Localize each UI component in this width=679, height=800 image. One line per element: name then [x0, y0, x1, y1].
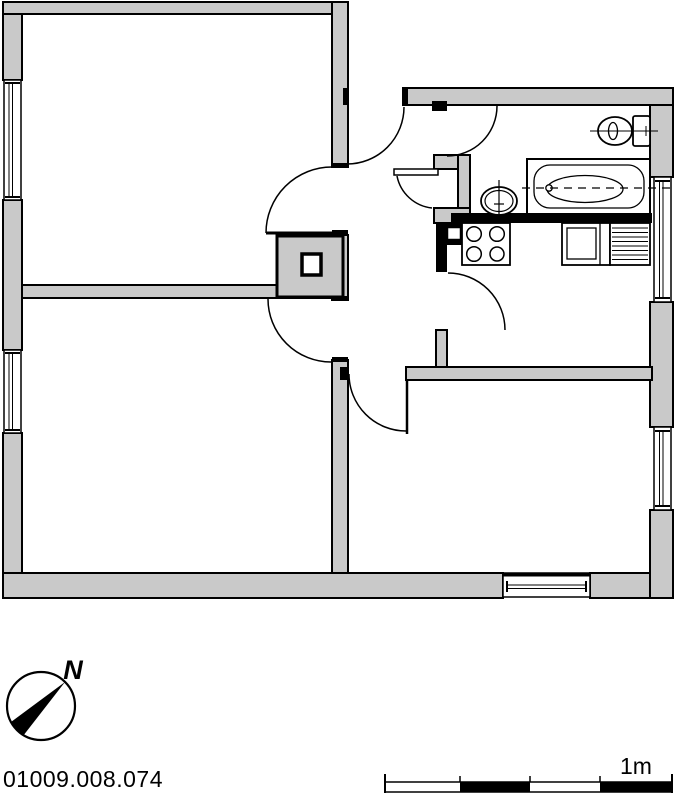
- room3-door-arc: [349, 374, 406, 431]
- west-wall-pier-top: [3, 14, 22, 80]
- room1-east-wall: [332, 2, 348, 167]
- north-wall: [3, 2, 348, 14]
- room3-north-wall: [406, 367, 652, 380]
- east-wall-pier-bottom: [650, 510, 673, 598]
- wall-end-cap-room1-door-bottom: [332, 230, 348, 235]
- compass-north-label: N: [63, 655, 83, 685]
- scale-bar-label: 1m: [620, 753, 652, 779]
- floor-plan-svg: N1m: [0, 0, 679, 800]
- room2-door-arc: [268, 299, 331, 362]
- east-wall-pier-mid: [650, 302, 673, 427]
- drawing-number: 01009.008.074: [3, 766, 163, 793]
- scale-bar-black-seg-2: [600, 782, 672, 792]
- west-wall-pier-mid: [3, 200, 22, 350]
- wall-end-cap-room2-door-bottom: [332, 357, 348, 362]
- kitchen-wall-stub: [436, 330, 447, 369]
- wall-end-cap-entrance-west: [343, 88, 348, 105]
- duct-opening: [447, 227, 461, 240]
- wall-end-cap-entrance-east: [403, 88, 408, 105]
- hall-west-wall-lower: [332, 360, 348, 573]
- bathtub-outer: [527, 159, 650, 214]
- closet-door-arc: [397, 176, 432, 208]
- scale-bar-inner-ticks: [460, 776, 600, 782]
- wall-end-cap-room2-door-top: [332, 296, 348, 301]
- wall-end-cap-room1-door-top: [332, 163, 348, 168]
- kitchen-door-arc: [448, 273, 505, 330]
- room1-door-arc: [266, 167, 332, 233]
- entrance-door-arc: [347, 107, 404, 164]
- closet-door-leaf: [394, 169, 438, 175]
- floor-plan-page: N1m 01009.008.074: [0, 0, 679, 800]
- drainer-body: [610, 223, 650, 265]
- chimney-flue-opening: [302, 254, 321, 275]
- scale-bar-black-seg-1: [460, 782, 530, 792]
- wall-end-cap-room3-door: [340, 367, 348, 380]
- bathroom-door-arc: [447, 106, 497, 156]
- bath-door-hinge-notch: [432, 101, 447, 111]
- south-wall-west: [3, 573, 503, 598]
